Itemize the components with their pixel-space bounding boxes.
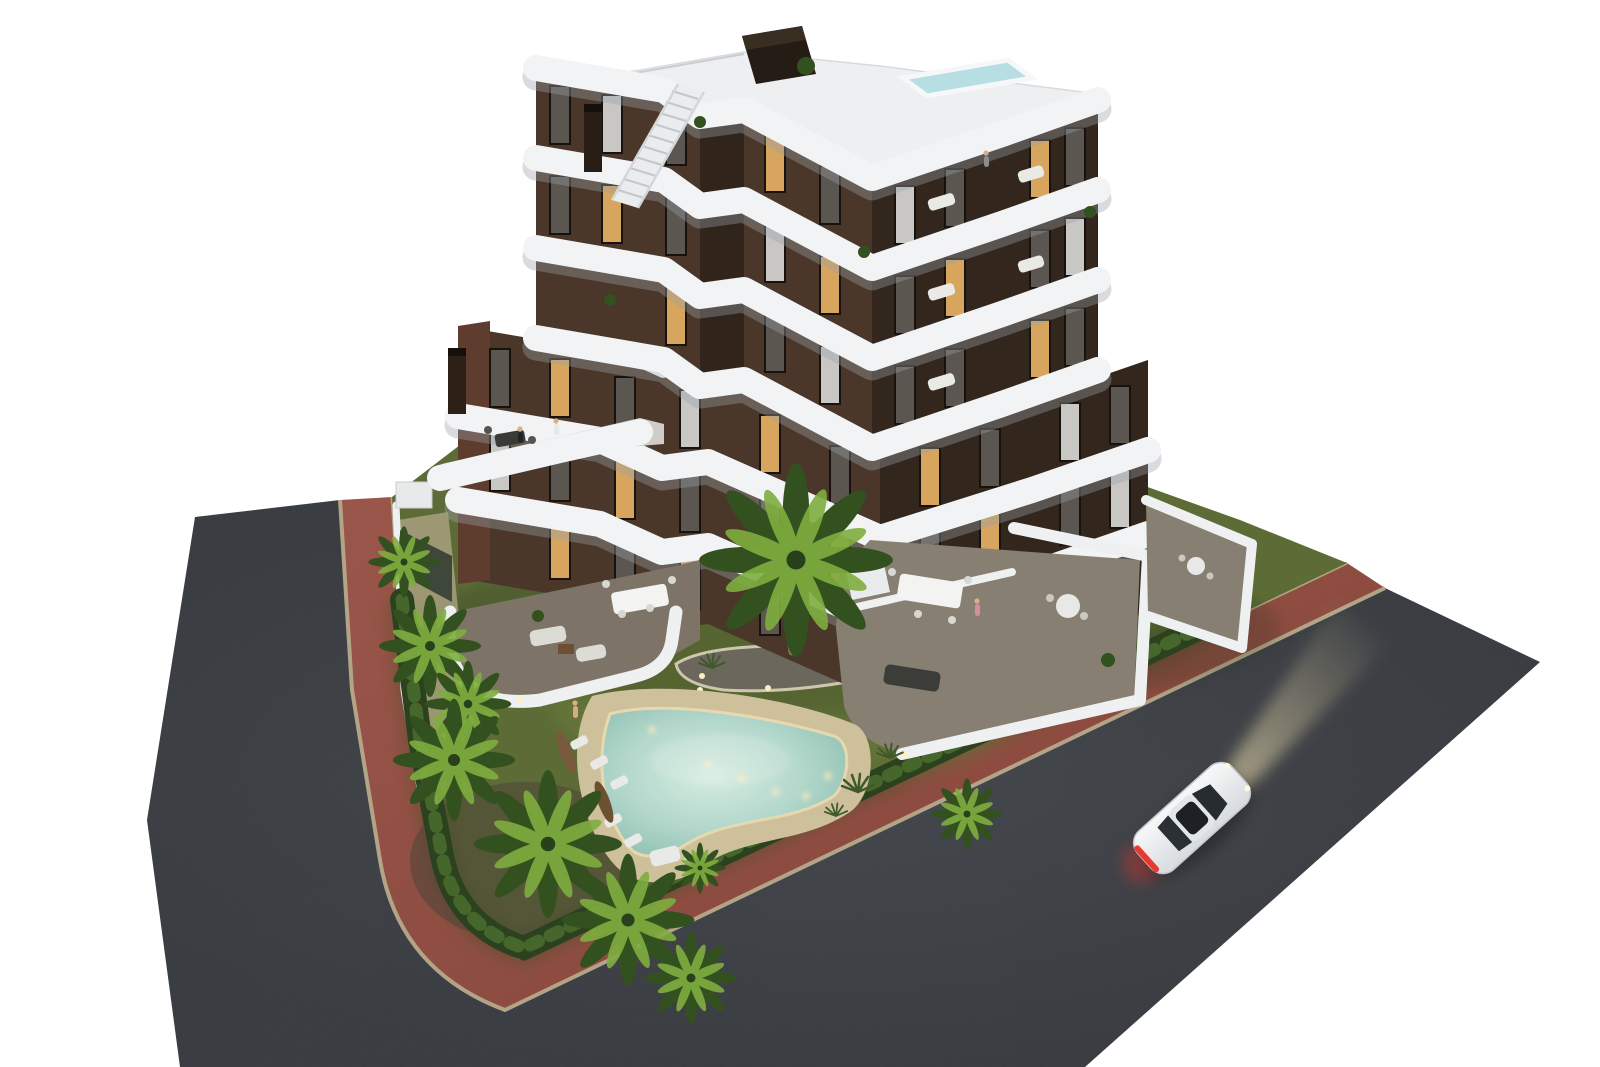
window xyxy=(550,359,570,417)
potted-plant xyxy=(1101,653,1115,667)
architectural-render xyxy=(0,0,1600,1067)
chair xyxy=(668,576,676,584)
bistro-table xyxy=(1056,594,1080,618)
chair xyxy=(1207,573,1214,580)
person xyxy=(553,418,559,435)
balcony-plant xyxy=(1084,206,1096,218)
chair xyxy=(618,610,626,618)
chimney-cap xyxy=(584,104,602,112)
water-caustic xyxy=(650,734,790,786)
chimney xyxy=(584,108,602,172)
person xyxy=(517,426,523,443)
person xyxy=(983,150,989,167)
window xyxy=(895,186,915,244)
window xyxy=(920,448,940,506)
render-canvas xyxy=(0,0,1600,1067)
window xyxy=(1030,320,1050,378)
chair xyxy=(888,568,896,576)
chair xyxy=(914,610,922,618)
utility-box xyxy=(396,482,432,508)
chimney-cap xyxy=(448,348,466,356)
balcony-plant xyxy=(604,294,616,306)
chair xyxy=(646,604,654,612)
potted-plant xyxy=(532,610,544,622)
coffee-table xyxy=(558,644,574,654)
terrace-light xyxy=(517,697,523,703)
person xyxy=(974,598,980,616)
window xyxy=(1065,218,1085,276)
window xyxy=(1065,308,1085,366)
window xyxy=(1060,403,1080,461)
palm-tree xyxy=(699,463,893,657)
chair xyxy=(1080,612,1088,620)
palm-tree xyxy=(931,778,1002,849)
palm-tree xyxy=(675,843,726,894)
palm-tree xyxy=(393,699,515,821)
roof-plant xyxy=(797,57,815,75)
chair xyxy=(484,426,492,434)
person xyxy=(572,700,578,718)
chair xyxy=(948,616,956,624)
window xyxy=(980,429,1000,487)
balcony-plant xyxy=(858,246,870,258)
garden-light xyxy=(765,685,771,691)
chair xyxy=(1046,594,1054,602)
window xyxy=(895,276,915,334)
balcony-plant xyxy=(694,116,706,128)
chair xyxy=(602,580,610,588)
window xyxy=(760,415,780,473)
chair xyxy=(1179,555,1186,562)
chair xyxy=(528,436,536,444)
window xyxy=(895,366,915,424)
window xyxy=(490,349,510,407)
bistro-table xyxy=(1187,557,1205,575)
chair xyxy=(964,576,972,584)
window xyxy=(1110,386,1130,444)
chimney xyxy=(448,352,466,414)
window xyxy=(1065,128,1085,186)
garden-light xyxy=(699,673,705,679)
palm-tree xyxy=(645,932,737,1024)
palm-tree xyxy=(368,526,439,597)
